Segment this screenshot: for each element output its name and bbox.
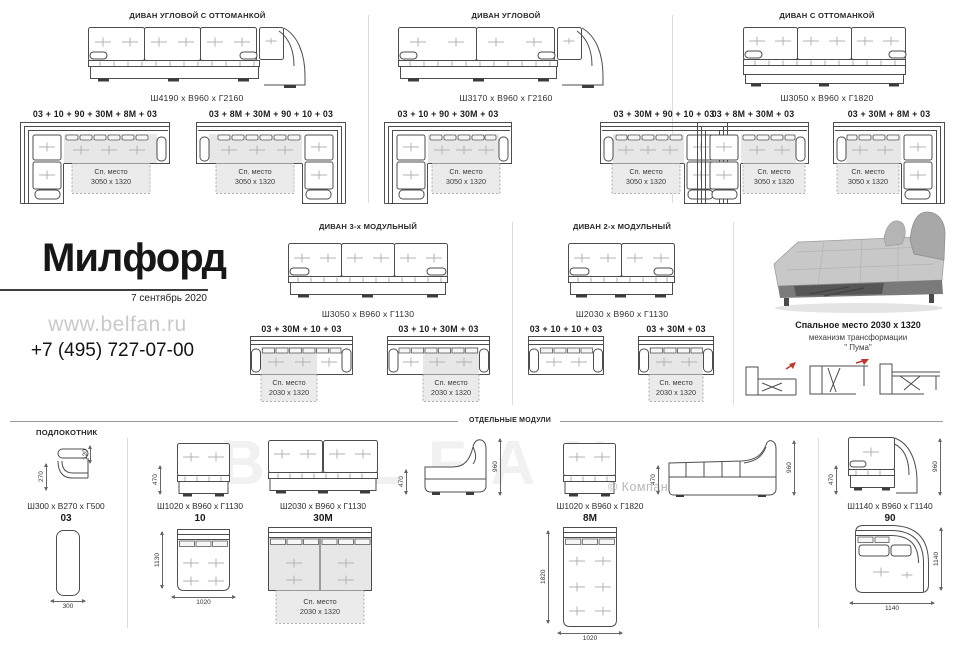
sleeping-place-note: Сп. место2030 x 1320 — [261, 378, 317, 398]
module-90-dimensions: Ш1140 x В960 x Г1140 — [835, 501, 945, 511]
config-label: 03 + 10 + 10 + 03 — [528, 324, 604, 334]
config-label: 03 + 8М + 30М + 03 — [697, 109, 809, 119]
config-label: 03 + 10 + 30М + 03 — [387, 324, 490, 334]
config-diagram — [528, 336, 604, 406]
divider-bottom-1 — [127, 438, 128, 628]
dim-back-height: 960 — [490, 439, 503, 495]
config-ottoman-a: 03 + 8М + 30М + 03 Сп. место3050 x 1320 — [697, 109, 809, 206]
divider-mid-1 — [512, 222, 513, 405]
armrest-code: 03 — [8, 513, 124, 524]
sleeping-place-note: Сп. место3050 x 1320 — [216, 167, 294, 187]
module-8m-top-view-drawing — [563, 527, 617, 627]
config-2-module-b: 03 + 30М + 03 Сп. место2030 x 1320 — [638, 324, 714, 408]
bottom-rule-left — [10, 421, 458, 422]
dim-module-10-width: 1020 — [172, 594, 235, 606]
sleeping-place-note: Сп. место3050 x 1320 — [612, 167, 680, 187]
phone-number: +7 (495) 727-07-00 — [15, 340, 210, 362]
module-30m-top-view: Сп. место2030 x 1320 — [268, 527, 372, 627]
module-30m-code: 30М — [268, 513, 378, 524]
module-10-front-drawing — [177, 443, 230, 499]
bottom-rule-right — [560, 421, 943, 422]
section-title-ottoman: ДИВАН С ОТТОМАНКОЙ — [715, 11, 939, 20]
sleeping-place-note: Сп. место2030 x 1320 — [649, 378, 703, 398]
armrest-dimensions: Ш300 x В270 x Г500 — [8, 501, 124, 511]
photo-caption-mechanism: механизм трансформации — [752, 333, 961, 342]
config-3-module-a: 03 + 30М + 10 + 03 Сп. место2030 x 1320 — [250, 324, 353, 408]
catalog-date: 7 сентябрь 2020 — [0, 293, 207, 304]
sofa-bed-photo — [764, 204, 956, 317]
dim-module-10-height: 470 — [150, 466, 163, 494]
dim-module-8m-back-height: 960 — [784, 441, 797, 495]
config-label: 03 + 30М + 10 + 03 — [250, 324, 353, 334]
dim-module-8m-seat-height: 470 — [648, 466, 661, 494]
config-diagram — [196, 122, 346, 204]
dim-module-10-depth: 1130 — [152, 532, 165, 588]
dim-module-8m-width: 1020 — [558, 630, 622, 642]
divider-bottom-2 — [818, 438, 819, 628]
armrest-top-view-drawing — [56, 530, 80, 596]
config-3-module-b: 03 + 10 + 30М + 03 Сп. место2030 x 1320 — [387, 324, 490, 408]
sleeping-place-note: Сп. место3050 x 1320 — [837, 167, 899, 187]
config-label: 03 + 30М + 03 — [638, 324, 714, 334]
ottoman-sofa-drawing — [743, 27, 908, 89]
corner-dimensions: Ш3170 x В960 x Г2160 — [406, 93, 606, 103]
dim-armrest-top: 120 — [80, 446, 93, 463]
armrest-title: ПОДЛОКОТНИК — [36, 428, 116, 437]
module-30m-front-drawing — [268, 440, 378, 497]
config-corner-a: 03 + 10 + 90 + 30М + 03 Сп. место3050 x … — [384, 109, 512, 206]
ottoman-dimensions: Ш3050 x В960 x Г1820 — [727, 93, 927, 103]
sleeping-place-note: Сп. место3050 x 1320 — [432, 167, 500, 187]
section-title-2-module: ДИВАН 2-х МОДУЛЬНЫЙ — [524, 222, 720, 231]
section-title-3-module: ДИВАН 3-х МОДУЛЬНЫЙ — [270, 222, 466, 231]
mechanism-step-2-drawing — [806, 356, 872, 398]
3-module-sofa-drawing — [288, 243, 448, 303]
section-title-corner: ДИВАН УГЛОВОЙ — [390, 11, 622, 20]
photo-caption-sleeping-place: Спальное место 2030 x 1320 — [752, 320, 961, 330]
config-label: 03 + 10 + 90 + 30М + 03 — [384, 109, 512, 119]
website-url: www.belfan.ru — [25, 313, 210, 337]
brand-title: Милфорд — [42, 236, 226, 281]
3-module-dimensions: Ш3050 x В960 x Г1130 — [268, 309, 468, 319]
dim-seat-height: 470 — [396, 470, 409, 494]
2-module-dimensions: Ш2030 x В960 x Г1130 — [522, 309, 722, 319]
sleeping-place-note: Сп. место3050 x 1320 — [743, 167, 805, 187]
sleeping-place-note: Сп. место2030 x 1320 — [423, 378, 479, 398]
dim-module-90-seat-height: 470 — [826, 466, 839, 494]
module-8m-code: 8М — [535, 513, 645, 524]
module-10-top-view-drawing — [177, 529, 230, 591]
2-module-sofa-drawing — [568, 243, 675, 303]
corner-ottoman-sofa-drawing — [88, 27, 310, 89]
section-title-corner-ottoman: ДИВАН УГЛОВОЙ С ОТТОМАНКОЙ — [40, 11, 355, 20]
config-label: 03 + 8М + 30М + 90 + 10 + 03 — [196, 109, 346, 119]
config-diagram — [833, 122, 945, 204]
sleeping-place-note: Сп. место2030 x 1320 — [276, 597, 364, 617]
dim-module-90-width: 1140 — [850, 600, 934, 612]
module-8m-dimensions: Ш1020 x В960 x Г1820 — [545, 501, 655, 511]
module-90-front-drawing — [840, 437, 928, 497]
photo-caption-mechanism-name: " Пума" — [752, 343, 961, 352]
catalog-page: BELFAN ДИВАН УГЛОВОЙ С ОТТОМАНКОЙ Ш4190 … — [0, 0, 961, 648]
divider-top-1 — [368, 15, 369, 203]
divider-mid-2 — [733, 222, 734, 405]
module-8m-side-view-drawing — [666, 439, 780, 497]
dim-armrest-depth: 270 — [36, 464, 49, 490]
corner-sofa-drawing — [398, 27, 608, 89]
mechanism-step-3-drawing — [876, 356, 942, 398]
config-corner-ottoman-a: 03 + 10 + 90 + 30М + 8М + 03 Сп. место30… — [20, 109, 170, 206]
config-2-module-a: 03 + 10 + 10 + 03 — [528, 324, 604, 408]
sleeping-place-note: Сп. место3050 x 1320 — [72, 167, 150, 187]
brand-underline — [0, 289, 208, 291]
config-label: 03 + 30М + 8М + 03 — [833, 109, 945, 119]
config-diagram — [384, 122, 512, 204]
dim-armrest-width: 300 — [51, 598, 85, 610]
config-corner-ottoman-b: 03 + 8М + 30М + 90 + 10 + 03 Сп. место30… — [196, 109, 346, 206]
module-10-dimensions: Ш1020 x В960 x Г1130 — [145, 501, 255, 511]
config-ottoman-b: 03 + 30М + 8М + 03 Сп. место3050 x 1320 — [833, 109, 945, 206]
corner-ottoman-dimensions: Ш4190 x В960 x Г2160 — [97, 93, 297, 103]
mechanism-step-1-drawing — [742, 357, 800, 399]
dim-module-8m-depth: 1820 — [538, 531, 551, 623]
module-90-code: 90 — [835, 513, 945, 524]
config-diagram — [697, 122, 809, 204]
module-side-view-drawing — [420, 437, 488, 497]
dim-module-90-back-height: 960 — [930, 439, 943, 495]
config-diagram — [20, 122, 170, 204]
module-30m-dimensions: Ш2030 x В960 x Г1130 — [268, 501, 378, 511]
dim-module-90-depth: 1140 — [931, 528, 944, 590]
config-label: 03 + 10 + 90 + 30М + 8М + 03 — [20, 109, 170, 119]
separate-modules-title: ОТДЕЛЬНЫЕ МОДУЛИ — [458, 417, 562, 424]
module-90-top-view-drawing — [855, 525, 929, 593]
module-10-code: 10 — [145, 513, 255, 524]
